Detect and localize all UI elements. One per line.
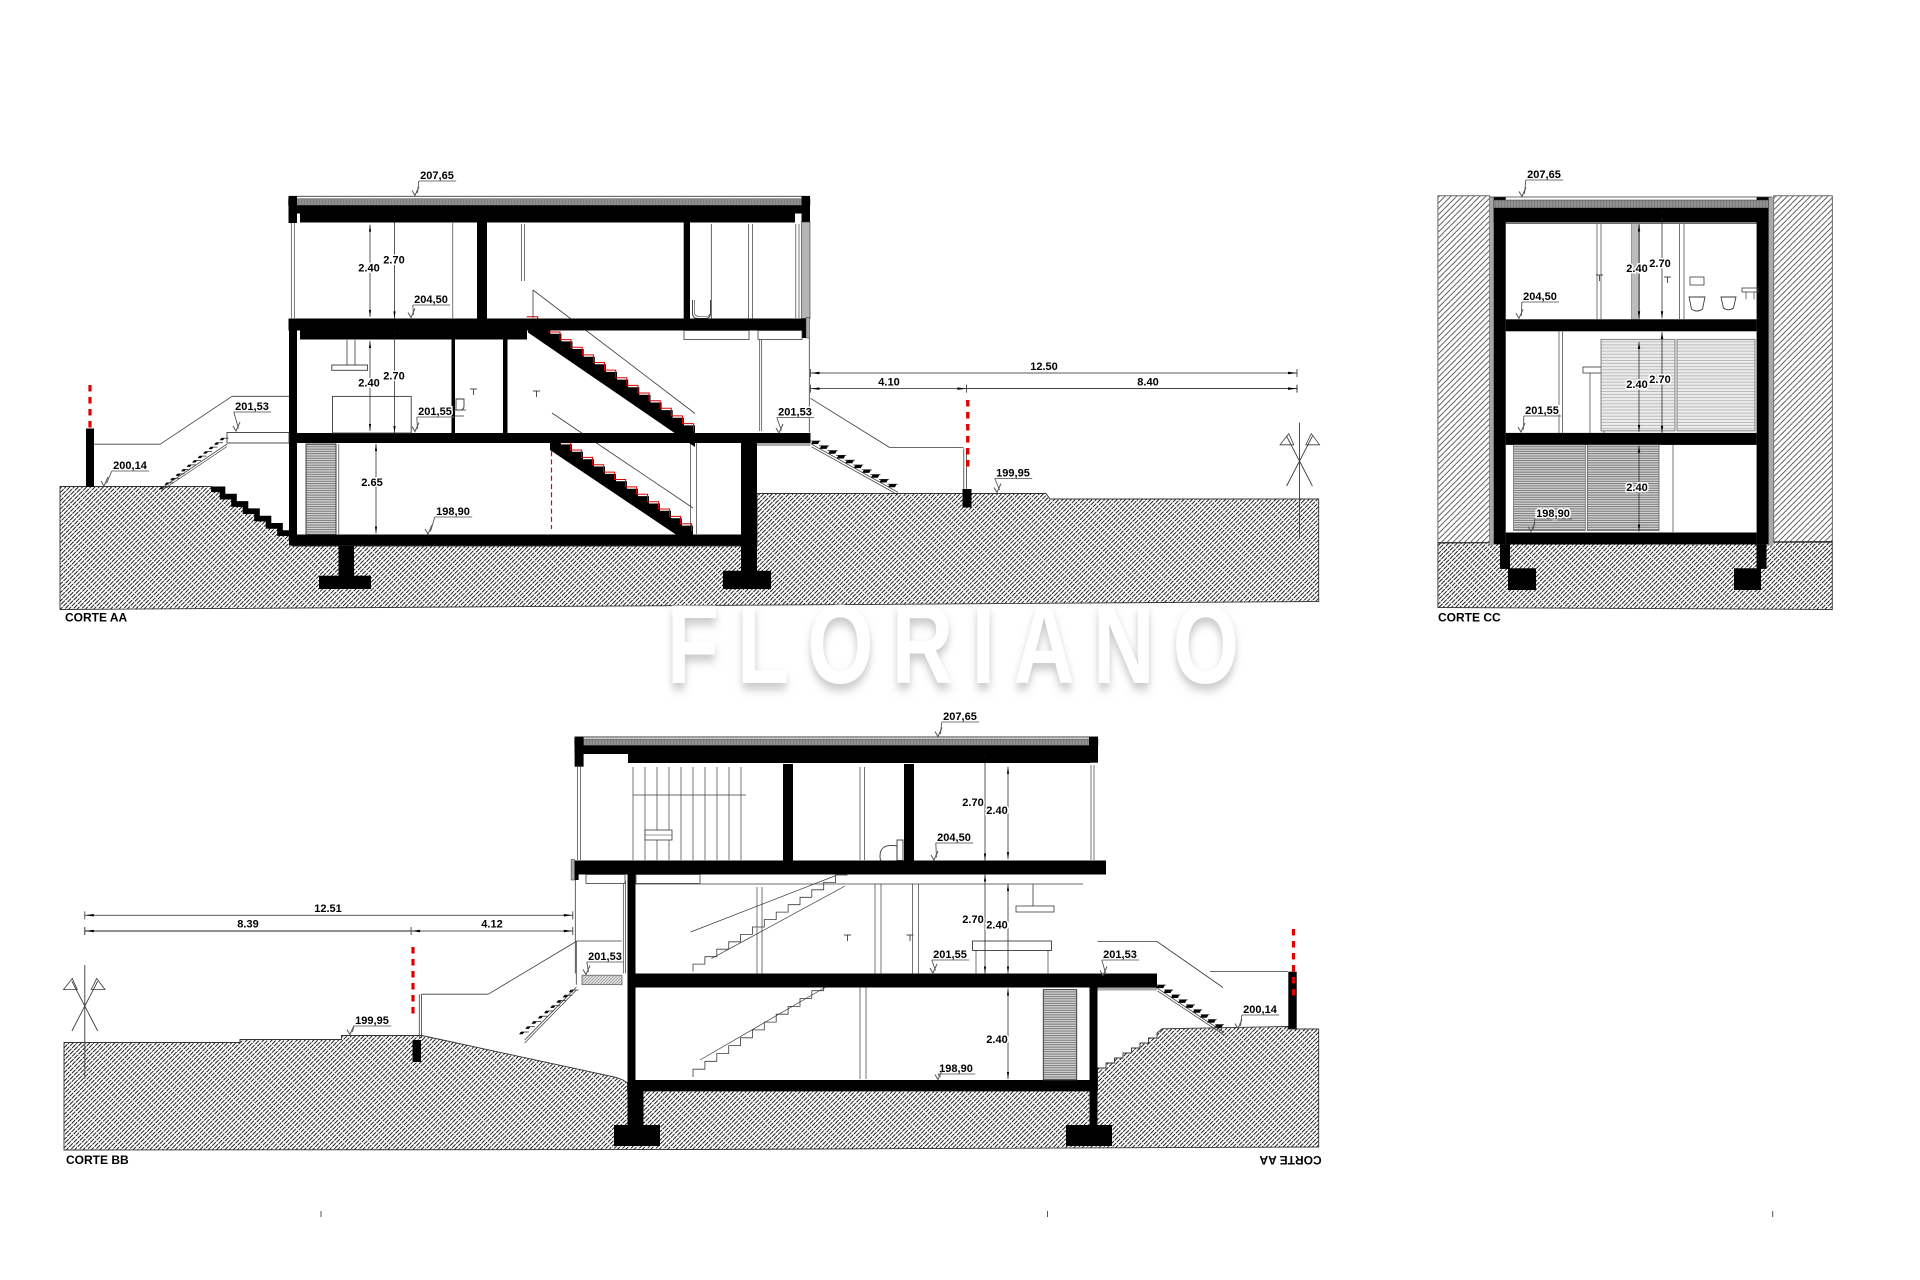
svg-text:201,55: 201,55 [418, 406, 452, 418]
svg-text:201,55: 201,55 [1525, 405, 1559, 417]
svg-text:207,65: 207,65 [420, 170, 454, 182]
svg-text:2.70: 2.70 [383, 255, 404, 267]
svg-text:204,50: 204,50 [1523, 291, 1557, 303]
svg-text:198,90: 198,90 [939, 1063, 973, 1075]
svg-text:2.40: 2.40 [1626, 379, 1647, 391]
svg-text:2.40: 2.40 [986, 1034, 1007, 1046]
svg-text:2.70: 2.70 [383, 371, 404, 383]
svg-text:2.40: 2.40 [986, 805, 1007, 817]
svg-text:201,55: 201,55 [933, 949, 967, 961]
svg-text:FLORIANO: FLORIANO [667, 583, 1257, 708]
svg-text:198,90: 198,90 [1536, 508, 1570, 520]
svg-text:2.70: 2.70 [1649, 258, 1670, 270]
svg-text:204,50: 204,50 [414, 294, 448, 306]
svg-text:12.50: 12.50 [1030, 361, 1058, 373]
svg-text:2.70: 2.70 [962, 914, 983, 926]
svg-text:4.10: 4.10 [878, 377, 899, 389]
svg-text:CORTE AA: CORTE AA [1259, 1153, 1322, 1167]
svg-text:200,14: 200,14 [1243, 1004, 1278, 1016]
svg-text:201,53: 201,53 [778, 407, 812, 419]
svg-text:2.65: 2.65 [361, 477, 382, 489]
svg-text:2.40: 2.40 [986, 920, 1007, 932]
svg-text:2.40: 2.40 [1626, 263, 1647, 275]
svg-text:201,53: 201,53 [588, 951, 622, 963]
svg-text:8.40: 8.40 [1137, 377, 1158, 389]
svg-text:198,90: 198,90 [436, 506, 470, 518]
svg-text:CORTE BB: CORTE BB [66, 1153, 129, 1167]
svg-text:199,95: 199,95 [355, 1015, 389, 1027]
svg-text:2.40: 2.40 [358, 378, 379, 390]
svg-text:12.51: 12.51 [314, 903, 342, 915]
svg-text:201,53: 201,53 [235, 401, 269, 413]
svg-text:201,53: 201,53 [1103, 949, 1137, 961]
svg-text:207,65: 207,65 [1527, 169, 1561, 181]
svg-text:CORTE CC: CORTE CC [1438, 611, 1501, 625]
svg-text:CORTE AA: CORTE AA [65, 611, 128, 625]
svg-text:2.40: 2.40 [1626, 482, 1647, 494]
svg-text:2.70: 2.70 [1649, 374, 1670, 386]
svg-text:204,50: 204,50 [937, 832, 971, 844]
svg-text:200,14: 200,14 [113, 460, 148, 472]
svg-text:4.12: 4.12 [481, 919, 502, 931]
svg-text:2.70: 2.70 [962, 797, 983, 809]
svg-text:199,95: 199,95 [996, 468, 1030, 480]
svg-text:207,65: 207,65 [943, 711, 977, 723]
svg-text:8.39: 8.39 [237, 919, 258, 931]
svg-text:2.40: 2.40 [358, 263, 379, 275]
